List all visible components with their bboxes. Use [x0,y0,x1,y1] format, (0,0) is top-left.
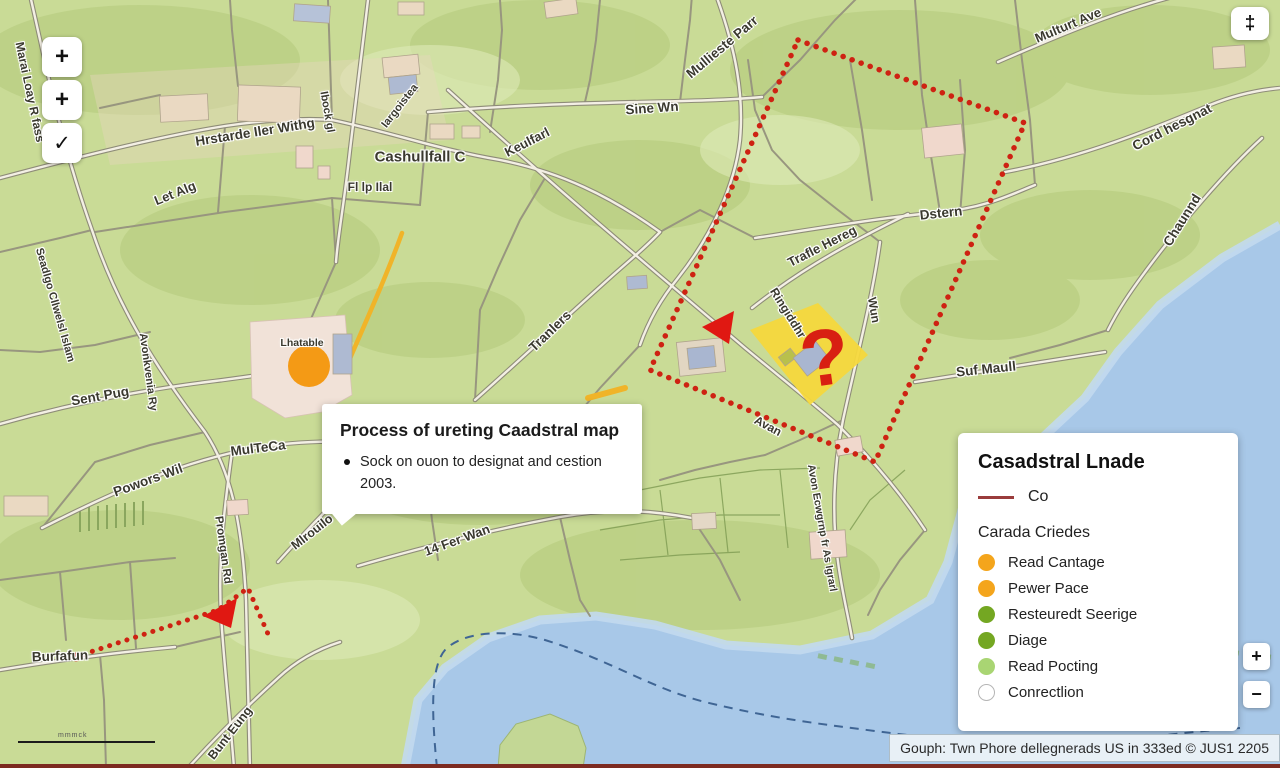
line-swatch [978,496,1014,499]
confirm-button[interactable]: ✓ [42,123,82,163]
popup-title: Process of ureting Caadstral map [340,420,624,441]
legend-item: Read Pocting [978,658,1218,675]
poi-marker-orange [288,345,330,387]
instruction-popup: Process of ureting Caadstral map Sock on… [322,404,642,514]
legend-item: Resteuredt Seerige [978,606,1218,623]
legend-item: Diage [978,632,1218,649]
legend-item-label: Read Pocting [1008,658,1098,675]
scale-bar: mmmck [18,741,155,743]
map-application: ? Marai Loay R fassSeadlgo Cllwelsl Isla… [0,0,1280,768]
zoom-in-button-2[interactable]: + [42,80,82,120]
legend-subtitle: Carada Criedes [978,524,1218,542]
legend-items: Read CantagePewer PaceResteuredt Seerige… [978,554,1218,701]
legend-item-label: Diage [1008,632,1047,649]
legend-dot-icon [978,606,995,623]
legend-dot-icon [978,554,995,571]
legend-line-item: Co [978,488,1218,506]
zoom-out-small-button[interactable]: − [1243,681,1270,708]
legend-item-label: Pewer Pace [1008,580,1089,597]
legend-line-label: Co [1028,488,1048,506]
attribution-text: Gouph: Twn Phore dellegnerads US in 333e… [900,740,1269,756]
popup-bullet-text: Sock on ouon to designat and cestion 200… [360,451,624,496]
bullet-icon [344,459,350,465]
legend-title: Casadstral Lnade [978,451,1218,474]
legend-item: Read Cantage [978,554,1218,571]
attribution-bar: Gouph: Twn Phore dellegnerads US in 333e… [889,734,1280,762]
legend-item-label: Read Cantage [1008,554,1105,571]
scale-bar-label: mmmck [58,732,88,739]
legend-item-label: Conrectlion [1008,684,1084,701]
legend-item: Conrectlion [978,684,1218,701]
legend-item-label: Resteuredt Seerige [1008,606,1137,623]
legend-item: Pewer Pace [978,580,1218,597]
zoom-in-small-button[interactable]: + [1243,643,1270,670]
legend-dot-icon [978,658,995,675]
zoom-in-button[interactable]: + [42,37,82,77]
legend-dot-icon [978,580,995,597]
legend-dot-icon [978,632,995,649]
legend-panel: Casadstral Lnade Co Carada Criedes Read … [958,433,1238,731]
legend-dot-icon [978,684,995,701]
locate-button[interactable]: ‡ [1231,7,1269,40]
